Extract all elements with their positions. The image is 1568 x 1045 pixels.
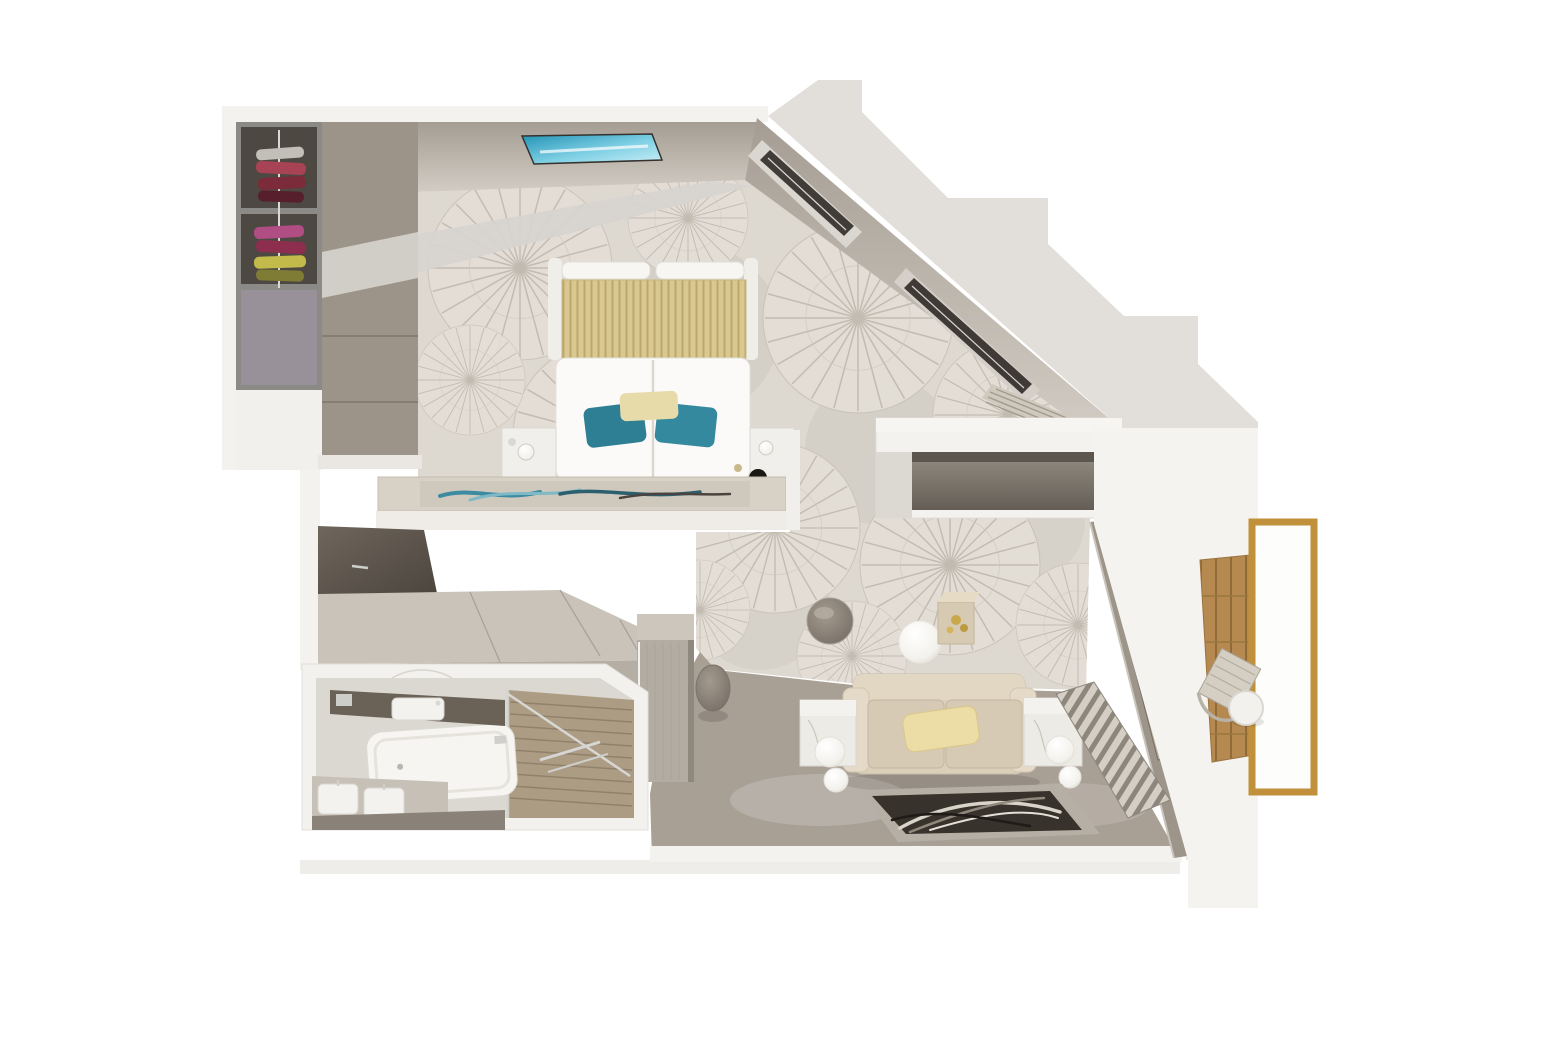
closet-base-white (236, 390, 322, 470)
vanity-fixture (336, 694, 352, 706)
wall-bottom (650, 846, 1182, 862)
vanity-faucet (435, 700, 440, 705)
wardrobe (236, 122, 422, 470)
round-side-table (807, 598, 853, 644)
pillow-beige (619, 391, 678, 422)
cube-decor-table (938, 592, 980, 644)
alcove-left-shade (876, 452, 912, 518)
headboard-gold-throw (562, 280, 746, 358)
wardrobe-cubby-empty (241, 290, 317, 385)
sink-basin-1 (318, 784, 358, 814)
bathroom (302, 664, 648, 830)
gold-cup (734, 464, 742, 472)
stool-shadow (698, 710, 728, 722)
console-alcove (876, 418, 1122, 518)
leaf-rug (860, 784, 1100, 842)
gold-balustrade-frame (1252, 522, 1314, 792)
sofa-back (853, 674, 1025, 700)
round-side-table-highlight (814, 607, 834, 619)
nightstand-left-lamp (518, 444, 534, 460)
round-cocktail-table (1229, 691, 1263, 725)
sphere-lamp (899, 621, 941, 663)
cabinet-side-shadow (688, 640, 694, 782)
console-end-cap (786, 430, 800, 530)
console-front (376, 511, 788, 530)
bed-pillow-left (562, 262, 650, 279)
mirror-panel (318, 526, 438, 598)
wall-left-mid (300, 470, 320, 670)
globe-lamp-left-bottom (824, 768, 848, 792)
exterior-shadow-bottom (300, 860, 1180, 874)
suite-floor-plan-render (0, 0, 1568, 1045)
closet-sill (318, 455, 422, 469)
nightstand-right-lamp (759, 441, 773, 455)
sofa (843, 674, 1036, 774)
globe-lamp-right-top (1046, 736, 1074, 764)
alcove-frame-top (876, 418, 1122, 432)
alcove-interior-shadow (912, 452, 1094, 462)
tall-cabinet-top (637, 614, 694, 640)
wall-top-outer (222, 106, 768, 122)
nightstand-left-decor (508, 438, 516, 446)
bed-pillow-right (656, 262, 744, 279)
globe-lamp-left-top (815, 737, 845, 767)
bed-side-bar-left (548, 258, 562, 360)
round-stool (696, 665, 730, 711)
